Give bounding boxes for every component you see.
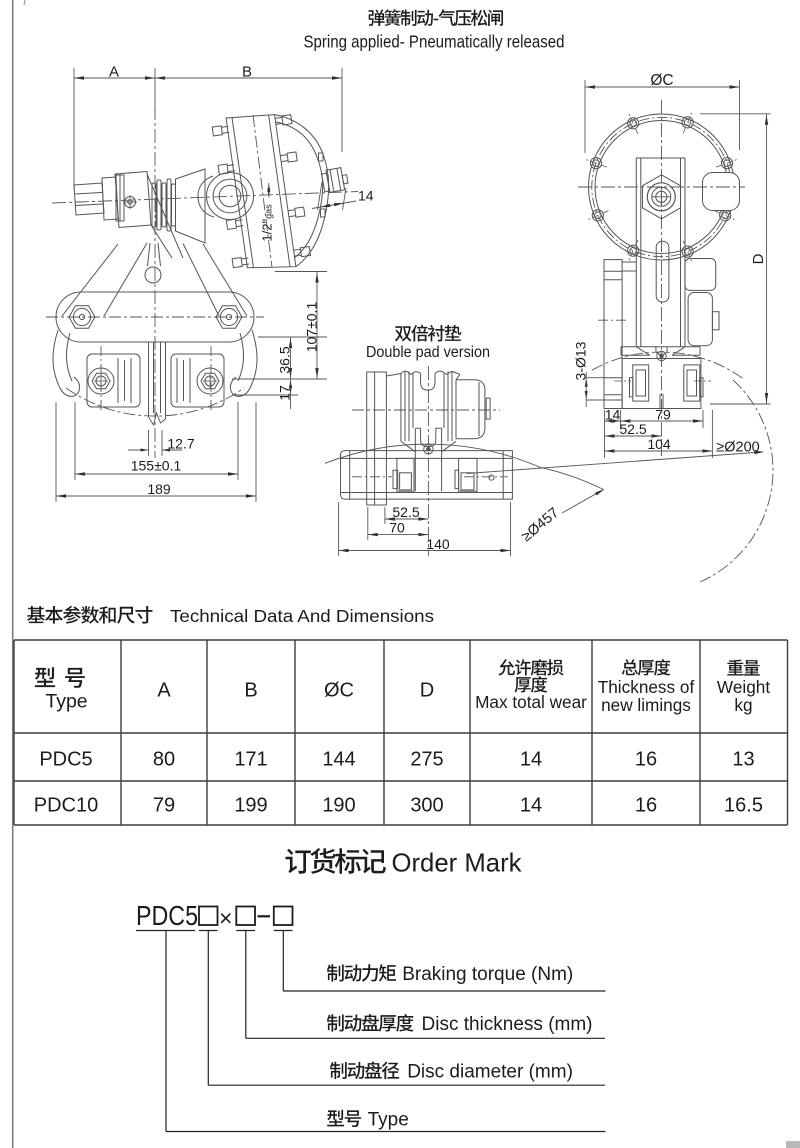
svg-text:14: 14 [358,188,374,204]
svg-text:104: 104 [647,436,671,452]
svg-text:155±0.1: 155±0.1 [131,458,182,474]
svg-text:199: 199 [234,795,267,817]
svg-text:≥Ø200: ≥Ø200 [716,440,759,456]
svg-text:300: 300 [410,795,443,817]
svg-text:144: 144 [322,749,355,771]
svg-text:275: 275 [410,749,443,771]
svg-text:Double pad version: Double pad version [366,344,490,361]
svg-text:13: 13 [732,749,754,771]
svg-text:52.5: 52.5 [392,504,419,520]
svg-text:Spring applied- Pneumatically: Spring applied- Pneumatically released [304,32,565,52]
svg-text:D: D [420,680,434,702]
svg-text:PDC10: PDC10 [34,795,98,817]
svg-text:1/2"gas: 1/2"gas [260,204,275,242]
svg-text:Disc thickness (mm): Disc thickness (mm) [422,1014,593,1035]
svg-text:16.5: 16.5 [724,795,763,817]
svg-text:PDC5: PDC5 [39,749,92,771]
svg-text:Weight: Weight [717,677,770,697]
svg-text:52.5: 52.5 [619,421,646,437]
svg-text:new limings: new limings [601,695,691,715]
svg-text:ØC: ØC [324,680,354,702]
svg-text:≥Ø457: ≥Ø457 [519,505,563,545]
svg-text:B: B [242,64,252,81]
svg-text:×: × [219,905,232,931]
svg-text:12.7: 12.7 [167,436,194,452]
svg-text:ØC: ØC [650,72,673,89]
svg-text:Type: Type [45,691,87,713]
svg-text:Braking torque (Nm): Braking torque (Nm) [402,964,573,985]
svg-text:kg: kg [734,695,752,715]
svg-text:80: 80 [153,749,175,771]
svg-text:Disc diameter (mm): Disc diameter (mm) [407,1062,573,1083]
svg-text:PDC5: PDC5 [136,900,198,931]
svg-text:A: A [157,680,171,702]
svg-text:Max total wear: Max total wear [475,692,587,712]
svg-text:Order Mark: Order Mark [392,848,523,878]
svg-text:36.5: 36.5 [277,346,293,373]
svg-text:16: 16 [635,795,657,817]
svg-text:190: 190 [322,795,355,817]
svg-text:189: 189 [147,481,171,497]
svg-text:140: 140 [426,536,450,552]
svg-text:D: D [750,253,767,264]
svg-text:14: 14 [520,749,542,771]
svg-text:79: 79 [655,407,671,423]
svg-text:3-Ø13: 3-Ø13 [573,341,589,380]
svg-text:79: 79 [153,795,175,817]
svg-text:A: A [109,64,119,81]
svg-text:14: 14 [520,795,542,817]
svg-text:B: B [244,680,257,702]
svg-text:Technical Data And Dimensions: Technical Data And Dimensions [170,606,434,626]
svg-text:16: 16 [635,749,657,771]
svg-text:70: 70 [389,520,405,536]
svg-text:17: 17 [277,385,293,401]
svg-text:171: 171 [234,749,267,771]
svg-text:14: 14 [605,407,621,423]
svg-text:Type: Type [368,1110,409,1131]
svg-text:107±0.1: 107±0.1 [304,302,320,353]
svg-text:Thickness of: Thickness of [598,677,695,697]
